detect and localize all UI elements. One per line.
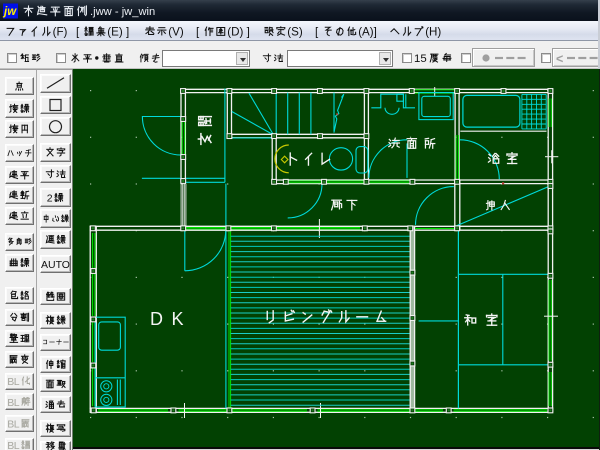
svg-text:2: 2 <box>47 193 53 205</box>
svg-text:L: L <box>14 397 20 409</box>
svg-text:(V): (V) <box>168 26 184 39</box>
svg-text:L: L <box>14 440 20 450</box>
svg-text:D: D <box>150 309 163 329</box>
svg-text:15: 15 <box>414 53 427 65</box>
svg-text:(S): (S) <box>287 26 303 39</box>
svg-text:AUTO: AUTO <box>41 259 70 271</box>
svg-text:(F): (F) <box>53 26 68 39</box>
svg-text:(A)]: (A)] <box>358 26 377 39</box>
svg-text:(D) ]: (D) ] <box>227 26 250 39</box>
svg-text:[: [ <box>315 26 319 39</box>
svg-text:L: L <box>14 376 20 388</box>
svg-text:K: K <box>172 309 184 329</box>
svg-text:<: < <box>556 52 563 66</box>
svg-text:[: [ <box>76 26 80 39</box>
svg-text:(H): (H) <box>425 26 441 39</box>
svg-text:[: [ <box>196 26 200 39</box>
svg-text:L: L <box>14 419 20 431</box>
svg-text:.jww - jw_win: .jww - jw_win <box>90 6 155 18</box>
svg-text:(E) ]: (E) ] <box>107 26 129 39</box>
svg-text:jw: jw <box>2 6 17 18</box>
